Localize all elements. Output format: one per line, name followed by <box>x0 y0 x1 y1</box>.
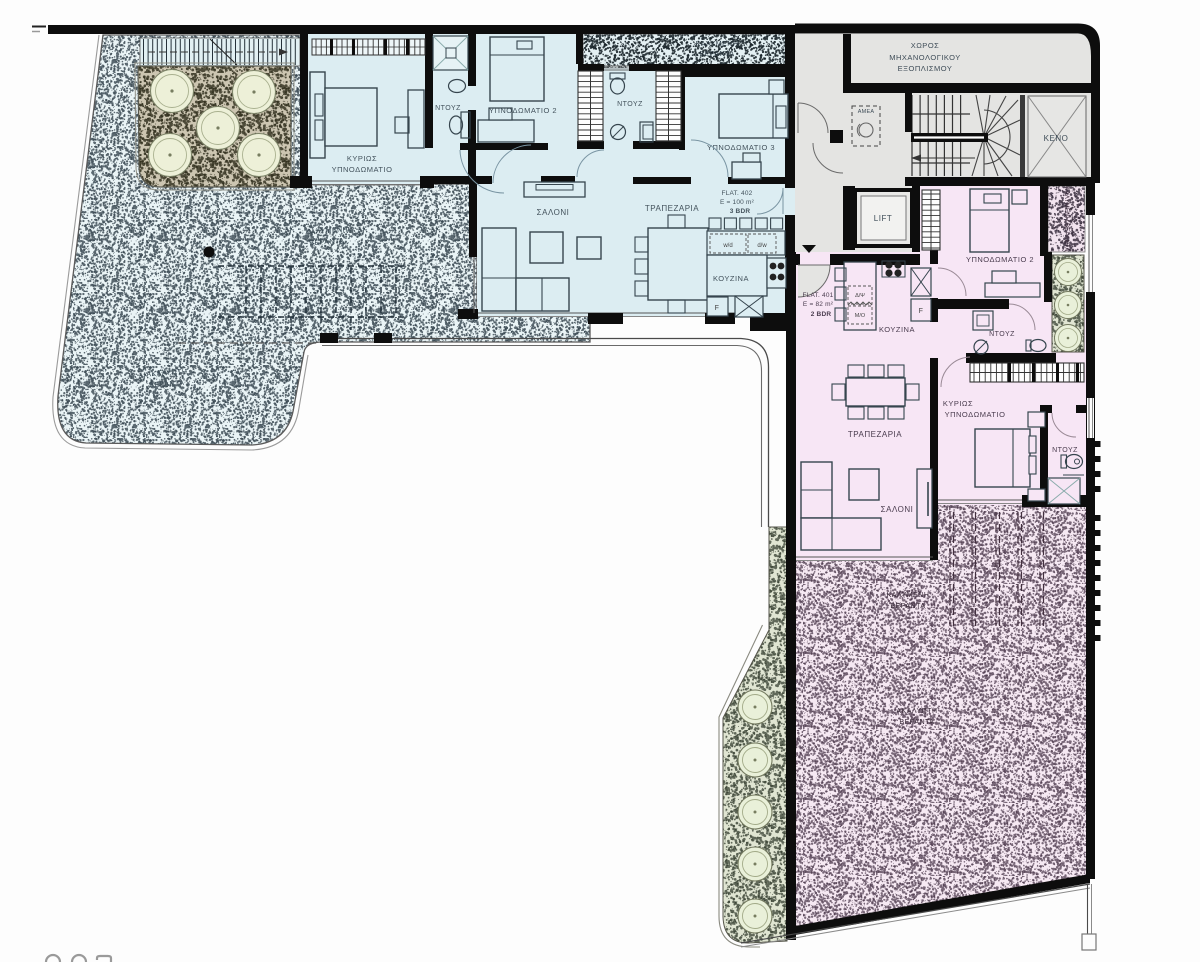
svg-text:ΒΕΡΑΝΤΑ: ΒΕΡΑΝΤΑ <box>899 719 934 726</box>
svg-text:LIFT: LIFT <box>874 214 892 223</box>
svg-text:ΚΑΛΥΜΕΝΗ ΒΕΡΑΝΤΑ: ΚΑΛΥΜΕΝΗ ΒΕΡΑΝΤΑ <box>1063 186 1069 251</box>
svg-text:ΕΞΟΠΛΙΣΜΟΥ: ΕΞΟΠΛΙΣΜΟΥ <box>898 64 953 73</box>
svg-text:ΝΤΟΥΖ: ΝΤΟΥΖ <box>1052 447 1078 454</box>
svg-text:FLAT. 401: FLAT. 401 <box>803 292 834 299</box>
svg-text:AMEA: AMEA <box>858 109 875 115</box>
svg-text:F: F <box>919 308 924 315</box>
svg-text:ΑΚΑΛΥΠΤΗ: ΑΚΑΛΥΠΤΗ <box>896 708 937 715</box>
svg-text:ΥΠΝΟΔΩΜΑΤΙΟ: ΥΠΝΟΔΩΜΑΤΙΟ <box>945 410 1006 419</box>
svg-text:ΣΑΛΟΝΙ: ΣΑΛΟΝΙ <box>537 208 570 217</box>
svg-text:ΚΑΛΥΜΕΝΗ: ΚΑΛΥΜΕΝΗ <box>887 592 930 599</box>
svg-text:E = 100 m²: E = 100 m² <box>720 199 755 206</box>
svg-text:E = 82 m²: E = 82 m² <box>803 301 834 308</box>
svg-text:ΤΡΑΠΕΖΑΡΙΑ: ΤΡΑΠΕΖΑΡΙΑ <box>645 204 699 213</box>
svg-text:ΧΩΡΟΣ: ΧΩΡΟΣ <box>911 41 940 50</box>
svg-text:ΝΤΟΥΖ: ΝΤΟΥΖ <box>617 101 643 108</box>
svg-text:ΚΑΛΥΜΕΝΗ: ΚΑΛΥΜΕΝΗ <box>696 41 739 48</box>
svg-text:ΚΟΥΖΙΝΑ: ΚΟΥΖΙΝΑ <box>879 325 915 334</box>
svg-text:d/w: d/w <box>757 243 767 249</box>
svg-text:ΜΗΧΑΝΟΛΟΓΙΚΟΥ: ΜΗΧΑΝΟΛΟΓΙΚΟΥ <box>889 53 961 62</box>
svg-text:ΚΟΥΖΙΝΑ: ΚΟΥΖΙΝΑ <box>713 274 749 283</box>
svg-text:ΝΤΟΥΖ: ΝΤΟΥΖ <box>989 331 1015 338</box>
svg-text:Δ/Ψ: Δ/Ψ <box>855 293 865 299</box>
svg-text:F: F <box>715 305 720 312</box>
svg-text:ΣΑΛΟΝΙ: ΣΑΛΟΝΙ <box>881 505 914 514</box>
svg-text:ΝΤΟΥΖ: ΝΤΟΥΖ <box>435 105 461 112</box>
svg-text:w/d: w/d <box>722 243 732 249</box>
svg-text:2 BDR: 2 BDR <box>811 311 832 318</box>
svg-text:ΥΠΝΟΔΩΜΑΤΙΟ 2: ΥΠΝΟΔΩΜΑΤΙΟ 2 <box>489 106 557 115</box>
svg-text:ΥΠΝΟΔΩΜΑΤΙΟ: ΥΠΝΟΔΩΜΑΤΙΟ <box>332 165 393 174</box>
svg-text:ΚΥΡΙΩΣ: ΚΥΡΙΩΣ <box>943 399 973 408</box>
svg-text:Μ/Ο: Μ/Ο <box>855 313 866 319</box>
svg-text:ΚΥΡΙΩΣ: ΚΥΡΙΩΣ <box>347 154 377 163</box>
svg-text:ΒΕΡΑΝΤΑ: ΒΕΡΑΝΤΑ <box>890 603 925 610</box>
svg-text:ΚΕΝΟ: ΚΕΝΟ <box>1044 134 1069 143</box>
svg-text:3 BDR: 3 BDR <box>730 208 751 215</box>
svg-text:ΒΕΡΑΝΤΑ: ΒΕΡΑΝΤΑ <box>699 51 734 58</box>
svg-text:ΥΠΝΟΔΩΜΑΤΙΟ 2: ΥΠΝΟΔΩΜΑΤΙΟ 2 <box>966 255 1034 264</box>
svg-text:FLAT. 402: FLAT. 402 <box>722 190 753 197</box>
svg-text:ΤΡΑΠΕΖΑΡΙΑ: ΤΡΑΠΕΖΑΡΙΑ <box>848 430 902 439</box>
